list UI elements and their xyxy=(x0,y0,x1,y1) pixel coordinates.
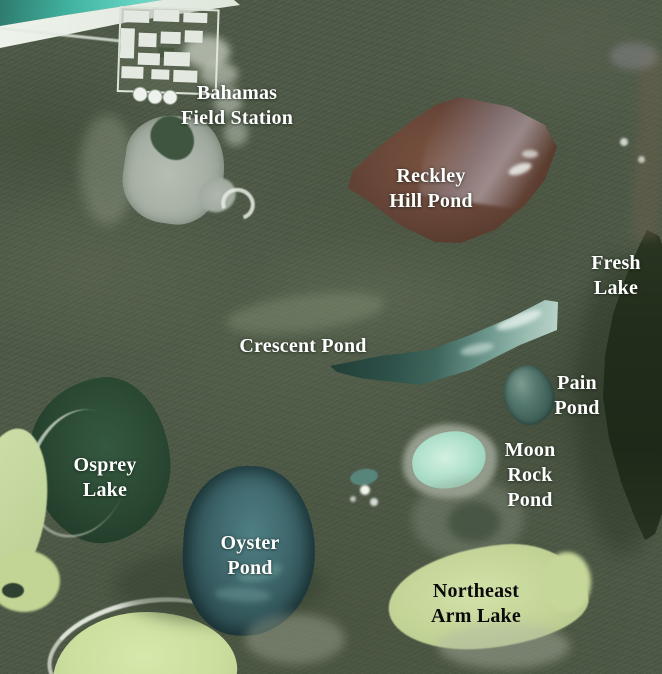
label-line: Reckley xyxy=(389,164,473,189)
label-line: Pain xyxy=(554,371,599,396)
label-reckley-hill-pond: Reckley Hill Pond xyxy=(389,164,473,214)
station-building xyxy=(160,31,180,44)
northeast-arm-lake-extension xyxy=(543,552,591,612)
reckley-white-highlight xyxy=(522,150,538,158)
label-line: Oyster xyxy=(221,531,280,556)
label-line: Arm Lake xyxy=(431,604,521,629)
label-line: Bahamas xyxy=(181,81,293,106)
label-moon-rock-pond: Moon Rock Pond xyxy=(505,438,556,513)
label-line: Crescent Pond xyxy=(239,334,366,359)
label-line: Hill Pond xyxy=(389,189,473,214)
label-line: Moon xyxy=(505,438,556,463)
light-mottle-patch xyxy=(438,623,570,669)
station-building xyxy=(183,12,207,23)
white-rock-dot xyxy=(638,156,645,163)
label-crescent-pond: Crescent Pond xyxy=(239,334,366,359)
label-fresh-lake: Fresh Lake xyxy=(591,251,641,301)
storage-tank xyxy=(147,89,163,105)
light-mottle-patch xyxy=(245,614,345,664)
satellite-map: Bahamas Field Station Reckley Hill Pond … xyxy=(0,0,662,674)
label-line: Field Station xyxy=(181,106,293,131)
label-line: Pond xyxy=(554,396,599,421)
label-line: Fresh xyxy=(591,251,641,276)
oyster-light-streak xyxy=(214,586,271,603)
rocky-ring-dark-center xyxy=(448,502,500,542)
label-northeast-arm-lake: Northeast Arm Lake xyxy=(431,579,521,629)
storage-tank xyxy=(162,90,178,106)
label-bahamas-field-station: Bahamas Field Station xyxy=(181,81,293,131)
station-building xyxy=(123,10,149,23)
label-line: Pond xyxy=(505,488,556,513)
label-line: Lake xyxy=(591,276,641,301)
label-line: Osprey xyxy=(73,453,136,478)
station-building xyxy=(153,9,179,22)
station-building xyxy=(138,33,156,48)
label-line: Northeast xyxy=(431,579,521,604)
label-osprey-lake: Osprey Lake xyxy=(73,453,136,503)
white-rock-dot xyxy=(370,498,378,506)
crescent-white-streak xyxy=(459,341,494,358)
label-pain-pond: Pain Pond xyxy=(554,371,599,421)
white-rock-dot xyxy=(360,485,370,495)
white-rock-dot xyxy=(620,138,628,146)
storage-tank xyxy=(132,87,148,103)
station-building xyxy=(121,66,143,79)
station-building xyxy=(151,69,169,80)
label-line: Rock xyxy=(505,463,556,488)
gray-patch xyxy=(610,42,658,70)
label-line: Pond xyxy=(221,556,280,581)
station-building xyxy=(120,28,135,58)
label-oyster-pond: Oyster Pond xyxy=(221,531,280,581)
label-line: Lake xyxy=(73,478,136,503)
white-rock-dot xyxy=(350,496,356,502)
dark-shrub-dot xyxy=(2,583,24,598)
station-building xyxy=(138,53,160,66)
